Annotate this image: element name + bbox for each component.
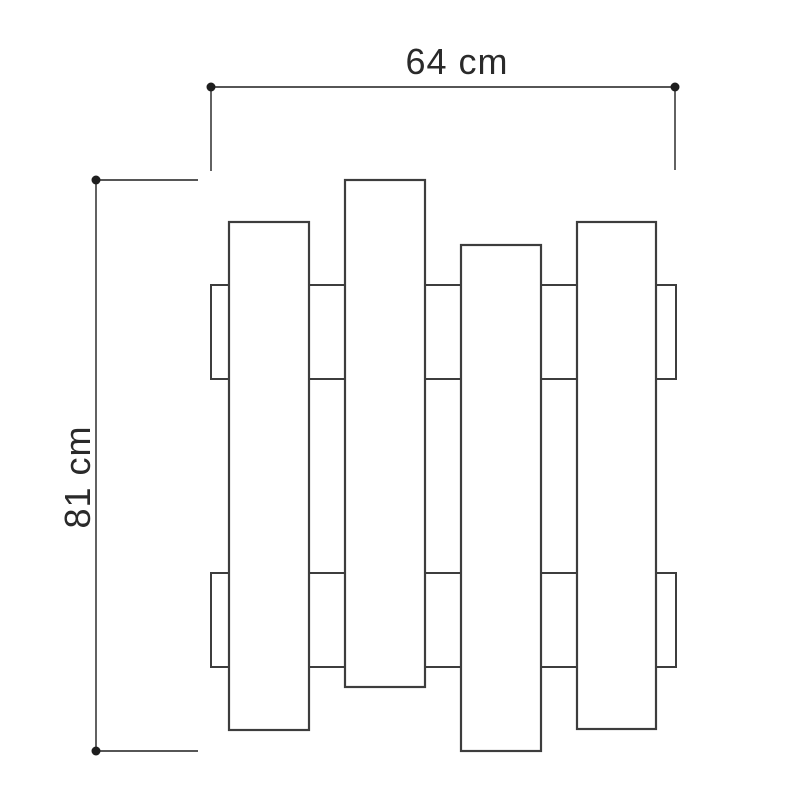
slat-bar-1 [229, 222, 309, 730]
width-endpoint-dot-2 [671, 83, 680, 92]
slat-bar-2 [345, 180, 425, 687]
width-dimension-label: 64 cm [405, 41, 508, 82]
product-dimension-diagram: 64 cm 81 cm [0, 0, 800, 800]
height-dimension-label: 81 cm [57, 425, 98, 528]
width-endpoint-dot-1 [207, 83, 216, 92]
height-endpoint-dot-1 [92, 176, 101, 185]
width-dimension [207, 83, 680, 172]
dimension-diagram-page: 64 cm 81 cm [0, 0, 800, 800]
height-dimension [92, 176, 199, 756]
slat-bar-4 [577, 222, 656, 729]
height-endpoint-dot-2 [92, 747, 101, 756]
slat-bar-3 [461, 245, 541, 751]
